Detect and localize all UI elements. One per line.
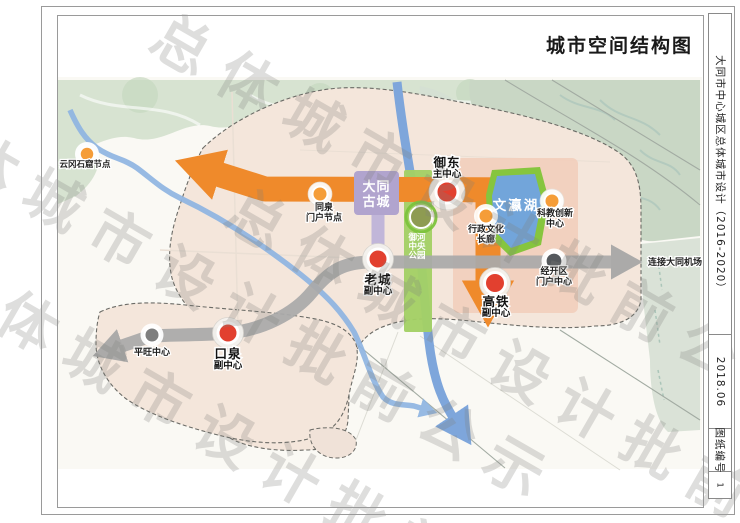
title-block-project-cell: 大同市中心城区总体城市设计（2016-2020） xyxy=(709,14,731,334)
page-title: 城市空间结构图 xyxy=(546,31,693,58)
title-block-sidebar: 大同市中心城区总体城市设计（2016-2020） 2018.06 图纸编号 1 xyxy=(708,13,732,499)
title-block-sheet-number-cell: 1 xyxy=(709,471,731,498)
title-block-date-cell: 2018.06 xyxy=(709,334,731,428)
project-name: 大同市中心城区总体城市设计（2016-2020） xyxy=(713,55,728,294)
drawing-date: 2018.06 xyxy=(714,356,726,406)
sheet-number-label: 图纸编号 xyxy=(713,427,728,473)
sheet-number: 1 xyxy=(716,482,725,488)
title-block-sheet-label-cell: 图纸编号 xyxy=(709,428,731,471)
drawing-frame xyxy=(57,15,704,508)
